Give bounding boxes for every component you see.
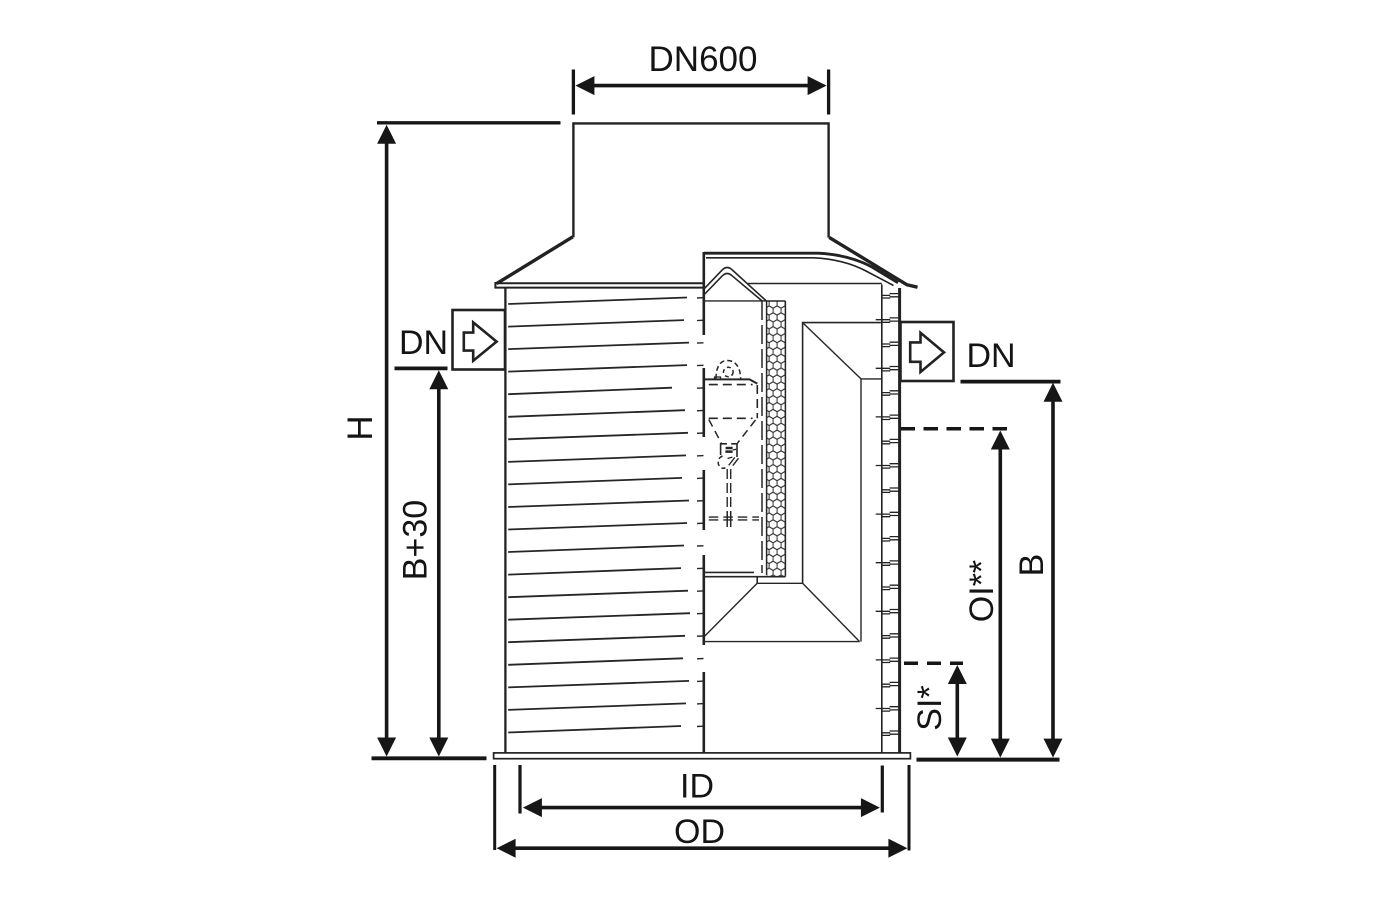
svg-text:OI**: OI** <box>963 560 1001 622</box>
svg-text:ID: ID <box>680 768 714 806</box>
svg-text:H: H <box>341 415 380 440</box>
svg-text:DN600: DN600 <box>649 40 758 79</box>
svg-text:B: B <box>1013 554 1051 577</box>
svg-text:SI*: SI* <box>911 685 949 730</box>
svg-text:OD: OD <box>674 813 725 851</box>
svg-text:B+30: B+30 <box>397 500 435 580</box>
svg-text:DN: DN <box>967 337 1016 375</box>
svg-text:DN: DN <box>399 324 448 362</box>
